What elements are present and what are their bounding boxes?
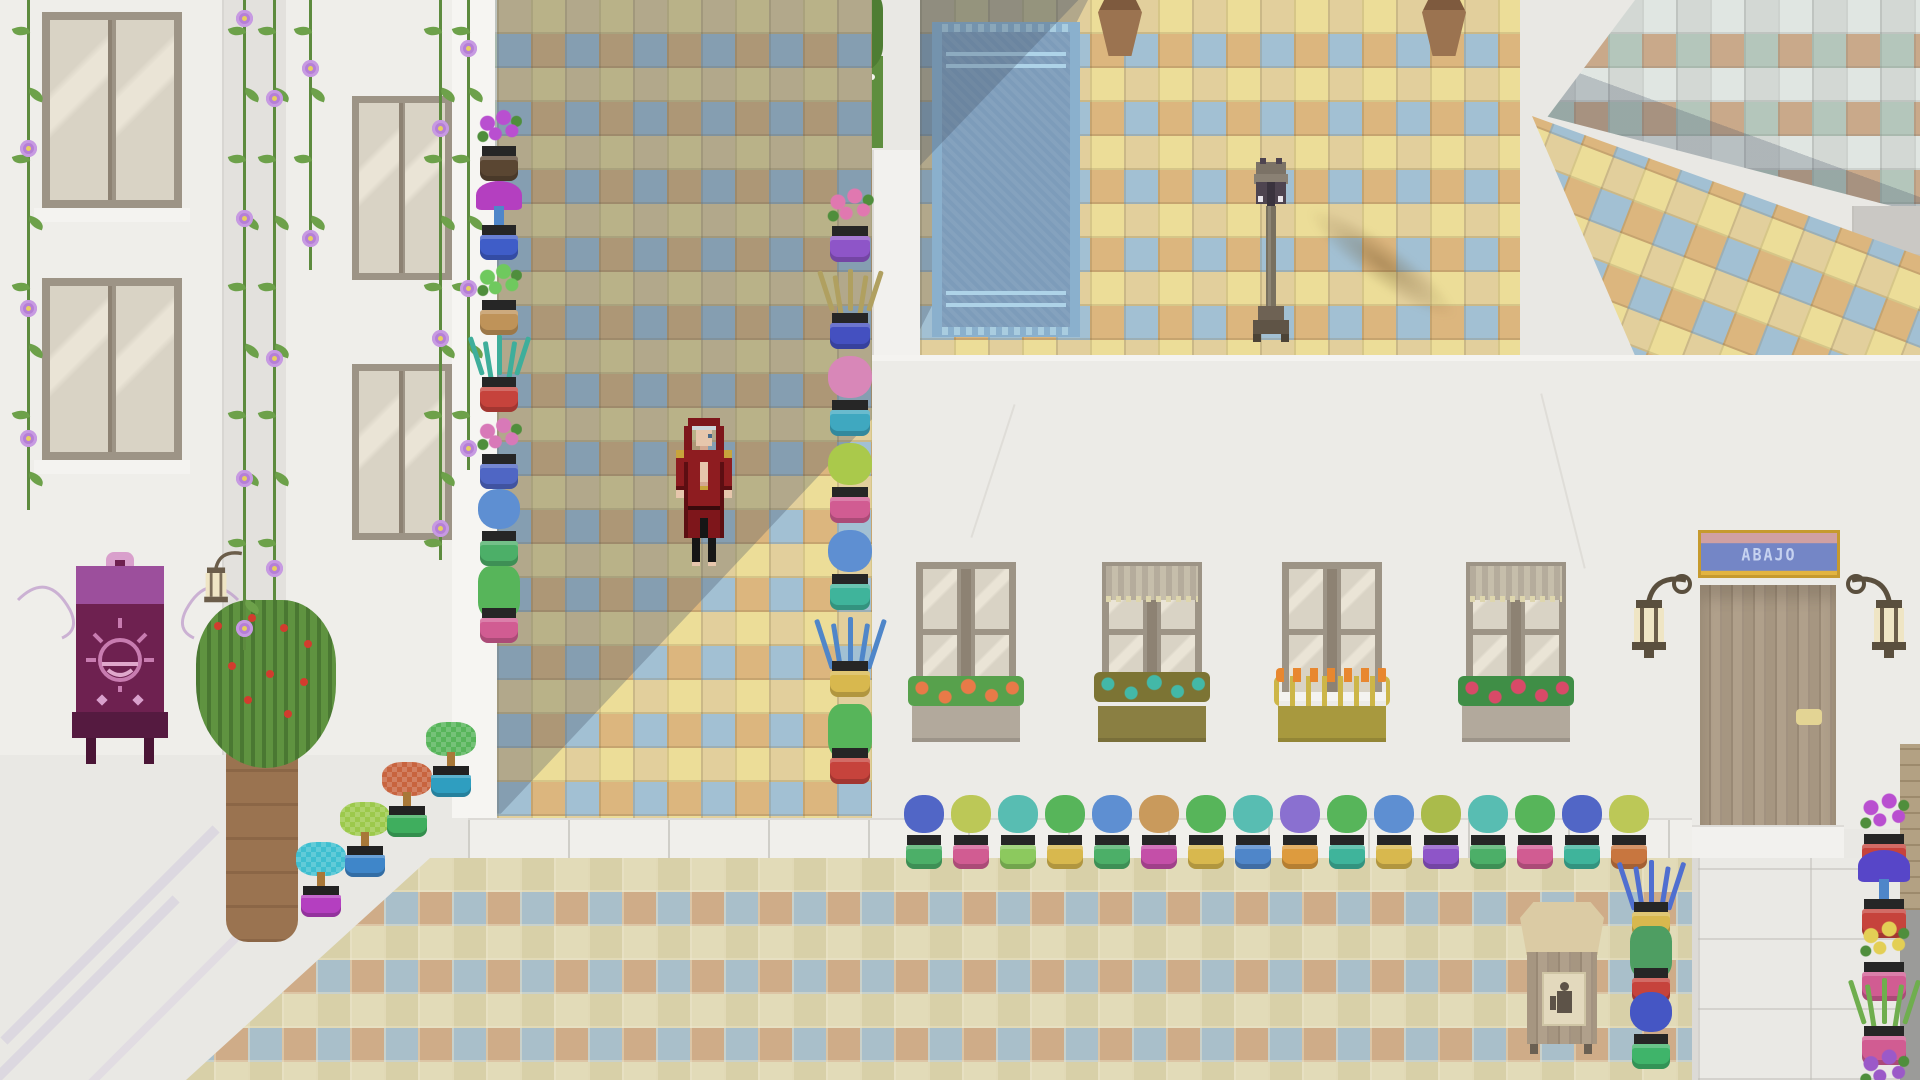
purple-banner: [70, 552, 170, 764]
pompom-bush: [1139, 795, 1179, 833]
pot-soil: [1330, 835, 1363, 845]
vine-flower-center: [466, 286, 471, 291]
box-planter: [1098, 706, 1206, 742]
vine-flower: [460, 40, 477, 57]
pot-soil: [482, 300, 517, 310]
bonsai-pot-soil: [303, 886, 339, 895]
vine-flower: [20, 140, 37, 157]
vine-flower: [432, 330, 449, 347]
window-left-a: [42, 12, 182, 208]
pot-soil: [1634, 902, 1669, 912]
bonsai-canopy: [296, 842, 346, 876]
potted-plant: [476, 566, 522, 649]
vine-flower-center: [438, 126, 443, 131]
game-viewport[interactable]: ABAJO: [0, 0, 1920, 1080]
vine-flower-center: [26, 436, 31, 441]
potted-plant: [1628, 992, 1674, 1075]
flower-cluster: [476, 108, 522, 146]
pot: [1235, 845, 1272, 869]
tulip-buds: [1276, 668, 1388, 682]
pompom-bush: [1045, 795, 1085, 833]
bonsai-pot: [301, 895, 341, 917]
potted-plant: [1560, 795, 1604, 874]
potted-plant: [826, 356, 874, 442]
grass-blade: [857, 275, 869, 317]
pot-soil: [482, 531, 517, 541]
pot-soil: [1612, 835, 1645, 845]
grass-blade: [832, 275, 844, 317]
vine-stem: [243, 0, 246, 650]
pot-soil: [482, 146, 517, 156]
vine-flower-center: [438, 526, 443, 531]
mushroom-cap: [1858, 850, 1910, 882]
potted-plant: [1513, 795, 1557, 874]
pot-soil: [1189, 835, 1222, 845]
pot-soil: [482, 454, 517, 464]
pot: [480, 156, 519, 181]
pot-soil: [482, 608, 517, 618]
pompom-bush: [1092, 795, 1132, 833]
pot-soil: [1634, 1034, 1669, 1044]
pot: [1141, 845, 1178, 869]
pot: [830, 584, 870, 610]
potted-plant: [826, 617, 874, 703]
potted-plant: [476, 412, 522, 495]
pot-soil: [954, 835, 987, 845]
pot-soil: [1424, 835, 1457, 845]
flower-cluster: [1858, 790, 1910, 834]
sidewalk-stripe: [0, 825, 219, 1044]
door-sign-text: ABAJO: [1701, 543, 1837, 571]
pompom-bush: [1374, 795, 1414, 833]
potted-plant: [826, 443, 874, 529]
vine: [264, 0, 286, 600]
pot: [830, 758, 870, 784]
mushroom-cap: [476, 181, 522, 210]
window-pane: [1289, 569, 1323, 629]
bonsai-canopy: [426, 722, 476, 756]
pot-soil: [1634, 968, 1669, 978]
window-mullion: [961, 569, 971, 693]
flower-cluster: [1858, 1046, 1910, 1080]
vine-flower-center: [26, 146, 31, 151]
bonsai-pot: [387, 815, 427, 837]
grass-blade: [848, 269, 853, 311]
vine-flower-center: [438, 336, 443, 341]
pot: [480, 541, 519, 566]
tall-planter-vase: [226, 742, 298, 942]
grass-blade: [506, 341, 517, 381]
window-flower-box: [1274, 692, 1390, 740]
flower-cluster: [1858, 918, 1910, 962]
potted-plant: [1231, 795, 1275, 874]
pot: [480, 464, 519, 489]
box-blooms: [908, 676, 1024, 706]
potted-plant: [476, 258, 522, 341]
pot-soil: [1142, 835, 1175, 845]
vine-flower-center: [308, 236, 313, 241]
bonsai-canopy: [382, 762, 432, 796]
pot-soil: [1864, 962, 1904, 972]
notice-kiosk[interactable]: [1520, 902, 1604, 1052]
potted-plant: [1372, 795, 1416, 874]
pot: [1632, 1044, 1671, 1069]
curtain-fringe: [1470, 596, 1562, 602]
vine: [234, 0, 256, 650]
pompom-bush: [951, 795, 991, 833]
pot: [1188, 845, 1225, 869]
pot-soil: [832, 487, 868, 497]
window-pane: [923, 569, 957, 629]
pot: [1000, 845, 1037, 869]
pot-soil: [1095, 835, 1128, 845]
vine-flower: [236, 620, 253, 637]
window-flower-box: [1094, 692, 1210, 740]
window-pane: [1341, 569, 1375, 629]
vine-flower: [432, 520, 449, 537]
pot-soil: [1283, 835, 1316, 845]
vine-flower: [236, 10, 253, 27]
pot-soil: [1001, 835, 1034, 845]
vine-flower: [460, 440, 477, 457]
vine-flower: [432, 120, 449, 137]
door-handle[interactable]: [1796, 709, 1822, 725]
pompom-bush: [1630, 992, 1672, 1032]
pot: [830, 671, 870, 697]
vine-flower-center: [242, 216, 247, 221]
potted-plant: [1043, 795, 1087, 874]
flower-cluster: [476, 416, 522, 454]
pompom-bush: [1233, 795, 1273, 833]
pompom-bush: [1562, 795, 1602, 833]
pot: [830, 410, 870, 436]
pot-soil: [832, 661, 868, 671]
box-planter: [1462, 706, 1570, 742]
vine-flower-center: [466, 446, 471, 451]
window-left-b: [42, 278, 182, 460]
potted-plant: [1184, 795, 1228, 874]
pompom-bush: [998, 795, 1038, 833]
pot: [830, 323, 870, 349]
vine-flower-center: [272, 96, 277, 101]
pot-soil: [1471, 835, 1504, 845]
vine-flower: [20, 430, 37, 447]
pot-soil: [1236, 835, 1269, 845]
pompom-bush: [828, 356, 872, 398]
grass-blade: [482, 341, 493, 381]
pot: [1470, 845, 1507, 869]
window-left-b-sill: [34, 460, 190, 474]
vine-flower-center: [466, 46, 471, 51]
bonsai-tree: [426, 722, 476, 802]
flower-cluster: [826, 186, 874, 226]
box-blooms: [1458, 676, 1574, 706]
box-planter: [1278, 706, 1386, 742]
pot-soil: [907, 835, 940, 845]
potted-plant: [1325, 795, 1369, 874]
potted-plant: [996, 795, 1040, 874]
walkway-tiles: [180, 858, 1692, 1080]
bonsai-trunk: [361, 832, 369, 846]
vine-flower-center: [242, 16, 247, 21]
kiosk-roof: [1520, 902, 1604, 955]
bonsai-tree: [296, 842, 346, 922]
vine-flower: [266, 560, 283, 577]
potted-plant: [476, 104, 522, 187]
pot-soil: [1565, 835, 1598, 845]
grass-blade: [1865, 984, 1877, 1030]
bonsai-pot-soil: [433, 766, 469, 775]
bonsai-tree: [382, 762, 432, 842]
pot: [830, 236, 870, 262]
potted-plant: [826, 530, 874, 616]
box-blooms: [1274, 676, 1390, 706]
pot: [1094, 845, 1131, 869]
vine-flower: [20, 300, 37, 317]
bonsai-pot: [431, 775, 471, 797]
potted-plant: [476, 335, 522, 418]
pot: [1047, 845, 1084, 869]
pot: [953, 845, 990, 869]
vine-flower-center: [26, 306, 31, 311]
player-character[interactable]: [664, 418, 744, 566]
vine-flower: [460, 280, 477, 297]
pompom-bush: [1421, 795, 1461, 833]
vine: [300, 0, 322, 270]
pot: [1376, 845, 1413, 869]
pot-soil: [482, 377, 517, 387]
pot-soil: [1864, 899, 1904, 909]
pot: [906, 845, 943, 869]
wall-lantern-left: [1626, 572, 1692, 664]
pot-soil: [832, 400, 868, 410]
vine-flower-center: [242, 626, 247, 631]
vine-flower: [302, 60, 319, 77]
window-curtain: [1470, 566, 1562, 600]
potted-plant: [826, 182, 874, 268]
sidewalk-stripe: [21, 935, 239, 1080]
potted-plant: [902, 795, 946, 874]
pot: [1282, 845, 1319, 869]
vine-flower: [266, 350, 283, 367]
pot-soil: [832, 574, 868, 584]
pot: [1423, 845, 1460, 869]
vine-flower-center: [272, 566, 277, 571]
pompom-bush: [1468, 795, 1508, 833]
pot: [480, 310, 519, 335]
pompom-bush: [1609, 795, 1649, 833]
pot-soil: [1864, 834, 1904, 844]
potted-plant: [826, 269, 874, 355]
pot: [1329, 845, 1366, 869]
window-flower-box: [908, 692, 1024, 740]
potted-plant: [1278, 795, 1322, 874]
pompom-bush: [828, 530, 872, 572]
vine-flower: [236, 470, 253, 487]
bonsai-pot-soil: [347, 846, 383, 855]
pot-soil: [832, 748, 868, 758]
pot: [1564, 845, 1601, 869]
bonsai-trunk: [403, 792, 411, 806]
door-sign: ABAJO: [1698, 530, 1840, 578]
sidewalk-stripe: [0, 895, 180, 1080]
bonsai-pot: [345, 855, 385, 877]
potted-plant: [1466, 795, 1510, 874]
vine-flower: [236, 210, 253, 227]
pot: [480, 235, 519, 260]
pompom-bush: [478, 489, 520, 529]
pompom-bush: [1186, 795, 1226, 833]
street-lamp: [1248, 158, 1294, 350]
window-flower-box: [1458, 692, 1574, 740]
vine-flower-center: [272, 356, 277, 361]
potted-plant: [1090, 795, 1134, 874]
potted-plant: [949, 795, 993, 874]
pompom-bush: [1327, 795, 1367, 833]
vine: [430, 0, 452, 560]
pompom-bush: [1280, 795, 1320, 833]
vine: [18, 0, 40, 510]
grass-blade: [1882, 978, 1887, 1024]
bonsai-trunk: [447, 752, 455, 766]
pot-soil: [1377, 835, 1410, 845]
potted-plant: [476, 489, 522, 572]
curtain-fringe: [1106, 596, 1198, 602]
pompom-bush: [1515, 795, 1555, 833]
pot-soil: [1518, 835, 1551, 845]
potted-plant: [1419, 795, 1463, 874]
flower-cluster: [476, 262, 522, 300]
vine-stem: [467, 0, 470, 470]
pot-soil: [1048, 835, 1081, 845]
box-blooms: [1094, 672, 1210, 702]
potted-plant: [1858, 1042, 1910, 1080]
window-curtain: [1106, 566, 1198, 600]
potted-plant: [476, 181, 522, 264]
bonsai-trunk: [317, 872, 325, 886]
pot-soil: [832, 226, 868, 236]
pompom-bush: [904, 795, 944, 833]
vine-flower: [302, 230, 319, 247]
pot: [480, 618, 519, 643]
grass-blade: [497, 335, 502, 375]
pot: [830, 497, 870, 523]
door[interactable]: [1700, 585, 1836, 825]
window-pane: [975, 569, 1009, 629]
potted-plant: [826, 704, 874, 790]
bonsai-pot-soil: [389, 806, 425, 815]
pot-soil: [482, 225, 517, 235]
vine-flower-center: [242, 476, 247, 481]
potted-plant: [1137, 795, 1181, 874]
window-left-a-sill: [34, 208, 190, 222]
wall-lantern-right: [1846, 572, 1912, 664]
kiosk-poster[interactable]: [1542, 972, 1586, 1026]
vine-flower: [266, 90, 283, 107]
pot-soil: [832, 313, 868, 323]
pot-soil: [1864, 1026, 1904, 1036]
vine-flower-center: [308, 66, 313, 71]
pot: [1517, 845, 1554, 869]
box-planter: [912, 706, 1020, 742]
weeping-plant: [196, 600, 336, 768]
pompom-bush: [828, 443, 872, 485]
pot: [480, 387, 519, 412]
